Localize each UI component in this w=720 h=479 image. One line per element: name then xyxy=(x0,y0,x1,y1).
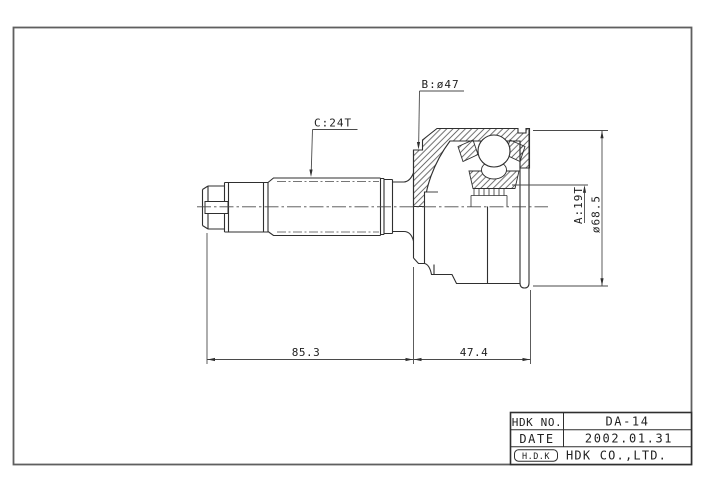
title-block-date-label: DATE xyxy=(519,432,554,446)
label-a-text: A:19T xyxy=(572,186,585,224)
drawing-page: B:ø47 C:24T A:19T ø68.5 85.3 4 xyxy=(0,0,720,479)
dim-shaft-length-text: 85.3 xyxy=(292,346,321,359)
snap-ring-groove xyxy=(205,202,228,214)
sheet-frame xyxy=(14,28,692,465)
label-c-text: C:24T xyxy=(314,117,352,130)
label-b-arrow xyxy=(417,142,420,150)
label-c-arrow xyxy=(309,170,312,178)
title-block-part-no: DA-14 xyxy=(605,415,649,429)
housing-section xyxy=(414,129,530,289)
inner-race-spline xyxy=(471,189,507,207)
dim-85-arrow-right xyxy=(406,358,414,361)
title-block-date: 2002.01.31 xyxy=(585,432,673,446)
label-od-text: ø68.5 xyxy=(590,195,603,233)
dim-85-arrow-left xyxy=(208,358,216,361)
label-b-text: B:ø47 xyxy=(422,78,460,91)
dimension-a: A:19T xyxy=(512,185,588,224)
cage-left-hatched xyxy=(458,140,478,162)
length-dimensions: 85.3 47.4 xyxy=(207,233,531,364)
title-block-company: HDK CO.,LTD. xyxy=(566,448,667,462)
label-c: C:24T xyxy=(309,117,357,178)
technical-drawing: B:ø47 C:24T A:19T ø68.5 85.3 4 xyxy=(0,0,720,479)
title-block-part-no-label: HDK NO. xyxy=(512,416,563,429)
hdk-logo-text: H.D.K xyxy=(522,452,550,462)
dim-47-arrow-left xyxy=(414,358,422,361)
dim-housing-length-text: 47.4 xyxy=(460,346,489,359)
dim-47-arrow-right xyxy=(523,358,531,361)
ball xyxy=(478,135,510,167)
dimension-od-arrow-bottom xyxy=(600,278,603,286)
dimension-od-arrow-top xyxy=(600,131,603,139)
dimension-od: ø68.5 xyxy=(533,131,608,287)
title-block: HDK NO. DA-14 DATE 2002.01.31 H.D.K HDK … xyxy=(511,413,692,465)
